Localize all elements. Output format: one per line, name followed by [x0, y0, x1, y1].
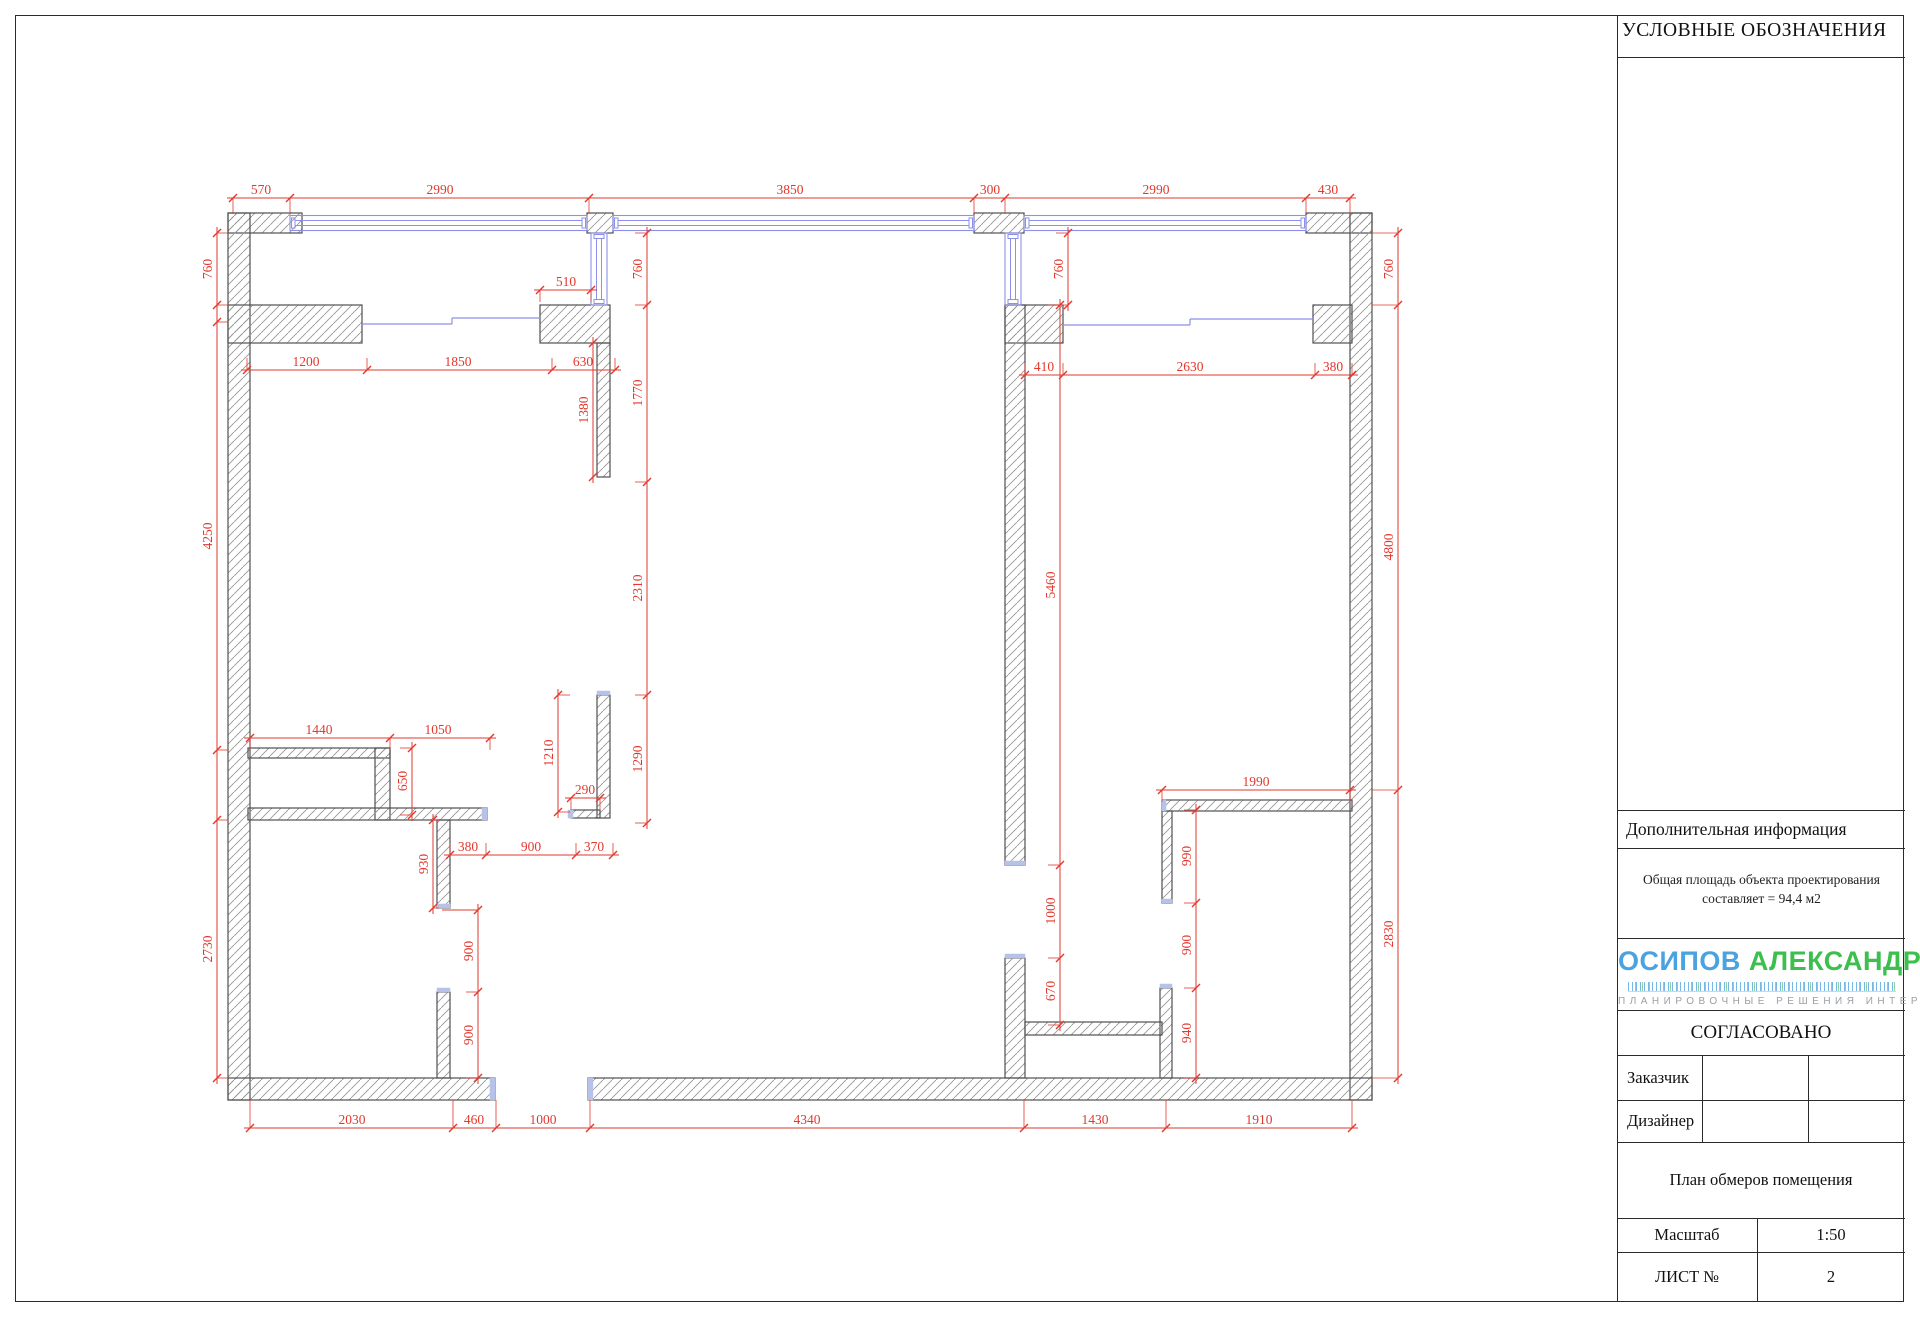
- area-note-line2: составляет = 94,4 м2: [1618, 889, 1905, 908]
- window: [1005, 233, 1021, 305]
- window-end-post: [594, 235, 604, 239]
- wall-end-cap: [568, 810, 573, 818]
- dim-label: 760: [1381, 259, 1396, 280]
- dim-label: 1210: [541, 739, 556, 766]
- dim-label: 670: [1043, 981, 1058, 1002]
- wall: [974, 213, 1024, 233]
- window: [290, 216, 587, 231]
- wall-end-cap: [482, 808, 487, 820]
- divider: [1617, 1010, 1905, 1011]
- dim-label: 1430: [1082, 1112, 1109, 1127]
- designer-row-label: Дизайнер: [1617, 1100, 1702, 1142]
- logo-second-word: АЛЕКСАНДР: [1749, 946, 1920, 976]
- walls-layer: [228, 213, 1372, 1100]
- area-note-line1: Общая площадь объекта проектирования: [1618, 870, 1905, 889]
- dim-label: 1990: [1243, 774, 1270, 789]
- dim-label: 2310: [630, 574, 645, 601]
- wall-end-cap: [597, 691, 610, 695]
- wall: [1162, 811, 1172, 903]
- info-header: Дополнительная информация: [1626, 819, 1905, 840]
- wall-end-cap: [1005, 861, 1025, 865]
- dim-label: 650: [395, 771, 410, 792]
- dim-label: 4340: [794, 1112, 821, 1127]
- wall: [1005, 305, 1025, 865]
- window: [1024, 216, 1306, 231]
- dim-label: 3850: [777, 182, 804, 197]
- wall: [588, 1078, 1372, 1100]
- window-end-post: [615, 218, 619, 228]
- wall-end-cap: [1162, 899, 1172, 903]
- client-row-label: Заказчик: [1617, 1055, 1702, 1100]
- approved-header: СОГЛАСОВАНО: [1617, 1022, 1905, 1044]
- dim-label: 2030: [339, 1112, 366, 1127]
- wall: [228, 1078, 495, 1100]
- dim-label: 460: [464, 1112, 485, 1127]
- dim-label: 430: [1318, 182, 1339, 197]
- dim-label: 4250: [200, 522, 215, 549]
- logo-first-word: ОСИПОВ: [1618, 946, 1741, 976]
- dim-label: 2630: [1177, 359, 1204, 374]
- window-end-post: [582, 218, 586, 228]
- window-end-post: [1008, 235, 1018, 239]
- wall-end-cap: [437, 904, 450, 908]
- window-end-post: [1026, 218, 1030, 228]
- dim-label: 380: [1323, 359, 1344, 374]
- scale-label: Масштаб: [1617, 1218, 1757, 1252]
- windows-layer: [290, 216, 1313, 326]
- wall: [597, 343, 610, 477]
- sheet-number-value: 2: [1757, 1252, 1905, 1302]
- wall: [587, 213, 613, 233]
- wall: [1162, 800, 1352, 811]
- drawing-sheet: { "legend": { "title": "УСЛОВНЫЕ ОБОЗНАЧ…: [0, 0, 1920, 1318]
- wall-end-cap: [588, 1078, 593, 1100]
- dim-label: 1910: [1246, 1112, 1273, 1127]
- divider: [1808, 1055, 1809, 1142]
- wall: [248, 748, 390, 758]
- dim-label: 2990: [427, 182, 454, 197]
- company-logo: ОСИПОВ АЛЕКСАНДР ПЛАНИРОВОЧНЫЕ РЕШЕНИЯ И…: [1618, 946, 1905, 1007]
- wall: [1025, 1022, 1162, 1035]
- dim-label: 380: [458, 839, 479, 854]
- dim-label: 2830: [1381, 920, 1396, 947]
- scale-value: 1:50: [1757, 1218, 1905, 1252]
- dim-label: 300: [980, 182, 1001, 197]
- wall: [1350, 213, 1372, 1100]
- dim-label: 370: [584, 839, 605, 854]
- wall: [437, 992, 450, 1078]
- dim-label: 760: [1051, 259, 1066, 280]
- logo-text: ОСИПОВ АЛЕКСАНДР: [1618, 946, 1905, 977]
- dim-label: 930: [416, 854, 431, 875]
- dim-label: 1770: [630, 379, 645, 406]
- dim-label: 1200: [293, 354, 320, 369]
- wall-end-cap: [437, 988, 450, 992]
- dim-label: 940: [1179, 1023, 1194, 1044]
- dim-label: 1440: [306, 722, 333, 737]
- divider: [1617, 57, 1905, 58]
- window: [591, 233, 607, 305]
- wall: [571, 810, 600, 818]
- divider: [1702, 1055, 1703, 1142]
- wall-end-cap: [490, 1078, 495, 1100]
- divider: [1617, 938, 1905, 939]
- wall: [228, 213, 250, 1100]
- wall: [437, 820, 450, 908]
- dim-label: 1000: [530, 1112, 557, 1127]
- wall: [1313, 305, 1352, 343]
- wall-end-cap: [1005, 954, 1025, 958]
- window-end-post: [1301, 218, 1305, 228]
- wall-end-cap: [1160, 984, 1172, 988]
- window-end-post: [969, 218, 973, 228]
- dim-label: 4800: [1381, 533, 1396, 560]
- wall: [228, 305, 362, 343]
- wall: [248, 808, 487, 820]
- dim-label: 5460: [1043, 571, 1058, 598]
- project-area-note: Общая площадь объекта проектирования сос…: [1618, 870, 1905, 908]
- dim-label: 410: [1034, 359, 1055, 374]
- dim-label: 1380: [576, 396, 591, 423]
- drawing-title: План обмеров помещения: [1617, 1142, 1905, 1218]
- dim-label: 760: [200, 259, 215, 280]
- dim-label: 630: [573, 354, 594, 369]
- wall-end-cap: [1162, 800, 1166, 811]
- window: [613, 216, 974, 231]
- dim-label: 1050: [425, 722, 452, 737]
- dim-label: 290: [575, 782, 596, 797]
- wall: [540, 305, 610, 343]
- dim-label: 1850: [445, 354, 472, 369]
- dim-label: 2990: [1143, 182, 1170, 197]
- legend-title: УСЛОВНЫЕ ОБОЗНАЧЕНИЯ: [1622, 20, 1905, 42]
- window-end-post: [1008, 300, 1018, 304]
- dim-label: 2730: [200, 935, 215, 962]
- dim-label: 1000: [1043, 897, 1058, 924]
- logo-tagline: ПЛАНИРОВОЧНЫЕ РЕШЕНИЯ ИНТЕРЬЕРОВ: [1618, 996, 1905, 1007]
- dim-label: 1290: [630, 745, 645, 772]
- divider: [1617, 848, 1905, 849]
- divider: [1617, 810, 1905, 811]
- dim-label: 510: [556, 274, 577, 289]
- dim-label: 760: [630, 259, 645, 280]
- dim-label: 900: [521, 839, 542, 854]
- divider: [1757, 1218, 1758, 1302]
- dim-label: 990: [1179, 846, 1194, 867]
- wall: [1005, 958, 1025, 1078]
- dim-label: 900: [461, 941, 476, 962]
- dim-label: 900: [461, 1025, 476, 1046]
- sheet-number-label: ЛИСТ №: [1617, 1252, 1757, 1302]
- dim-label: 570: [251, 182, 272, 197]
- dim-label: 900: [1179, 935, 1194, 956]
- window-end-post: [594, 300, 604, 304]
- logo-ruler-graphic: [1628, 982, 1896, 992]
